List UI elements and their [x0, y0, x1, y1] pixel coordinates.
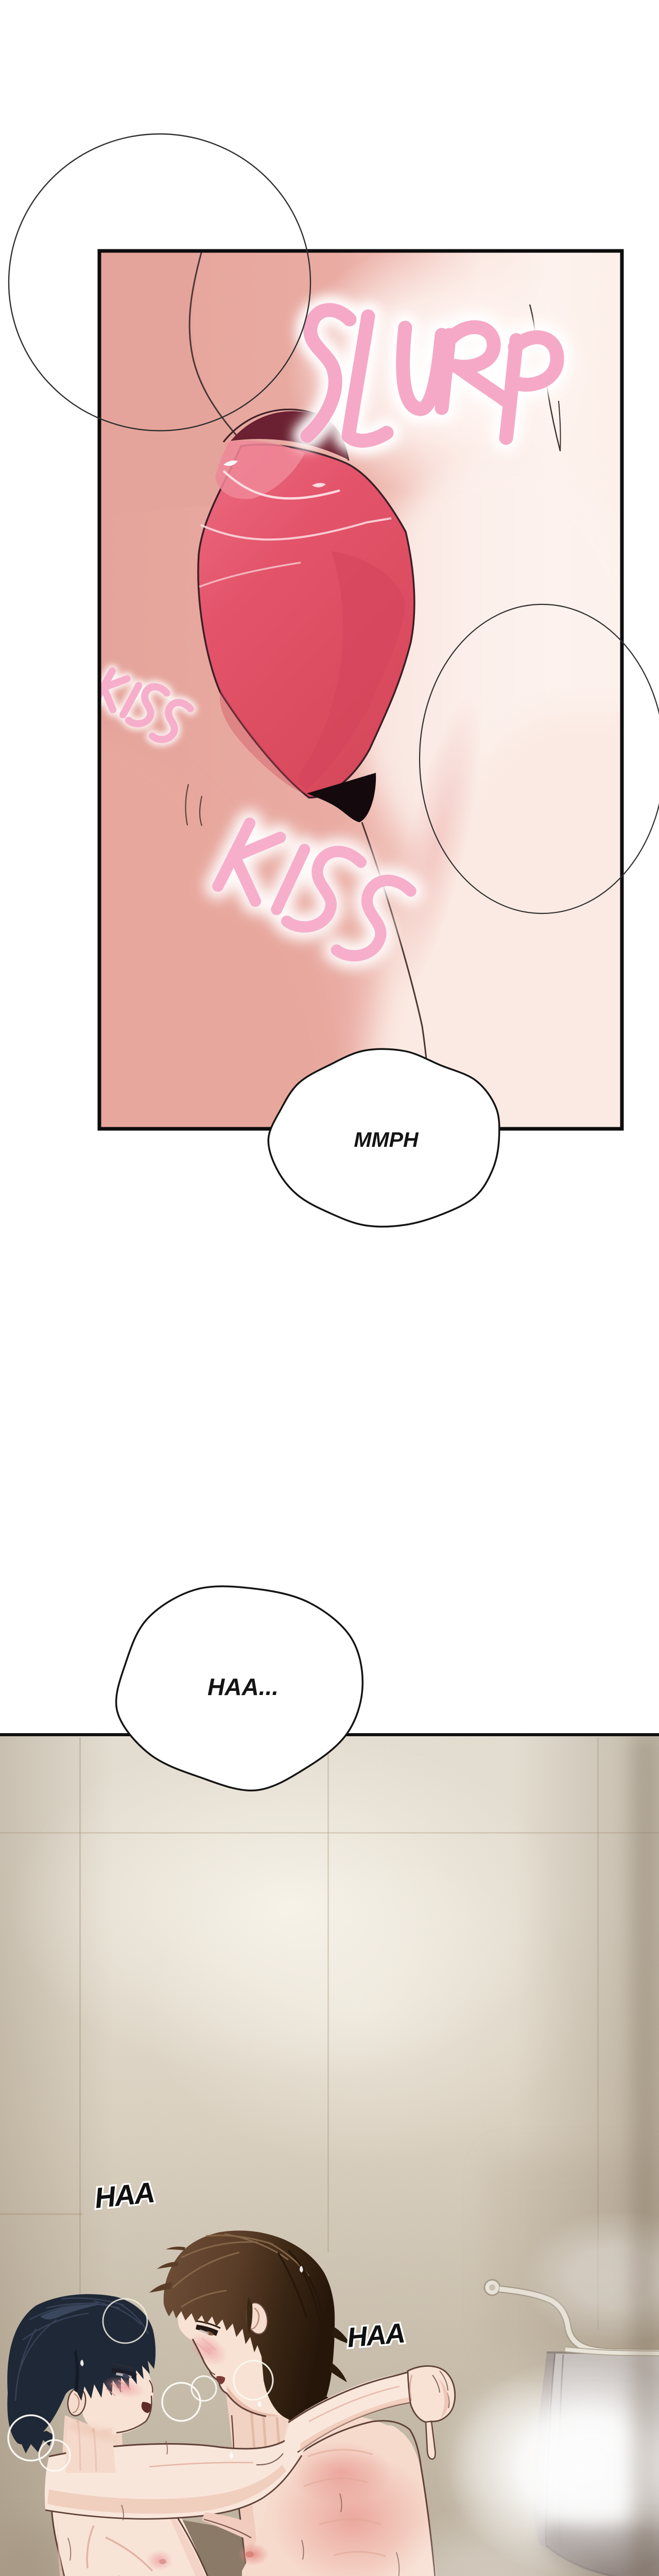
svg-text:HAA: HAA: [346, 2318, 406, 2353]
svg-text:HAA...: HAA...: [207, 1673, 279, 1700]
svg-text:HAA: HAA: [93, 2176, 155, 2214]
svg-text:MMPH: MMPH: [354, 1128, 419, 1151]
